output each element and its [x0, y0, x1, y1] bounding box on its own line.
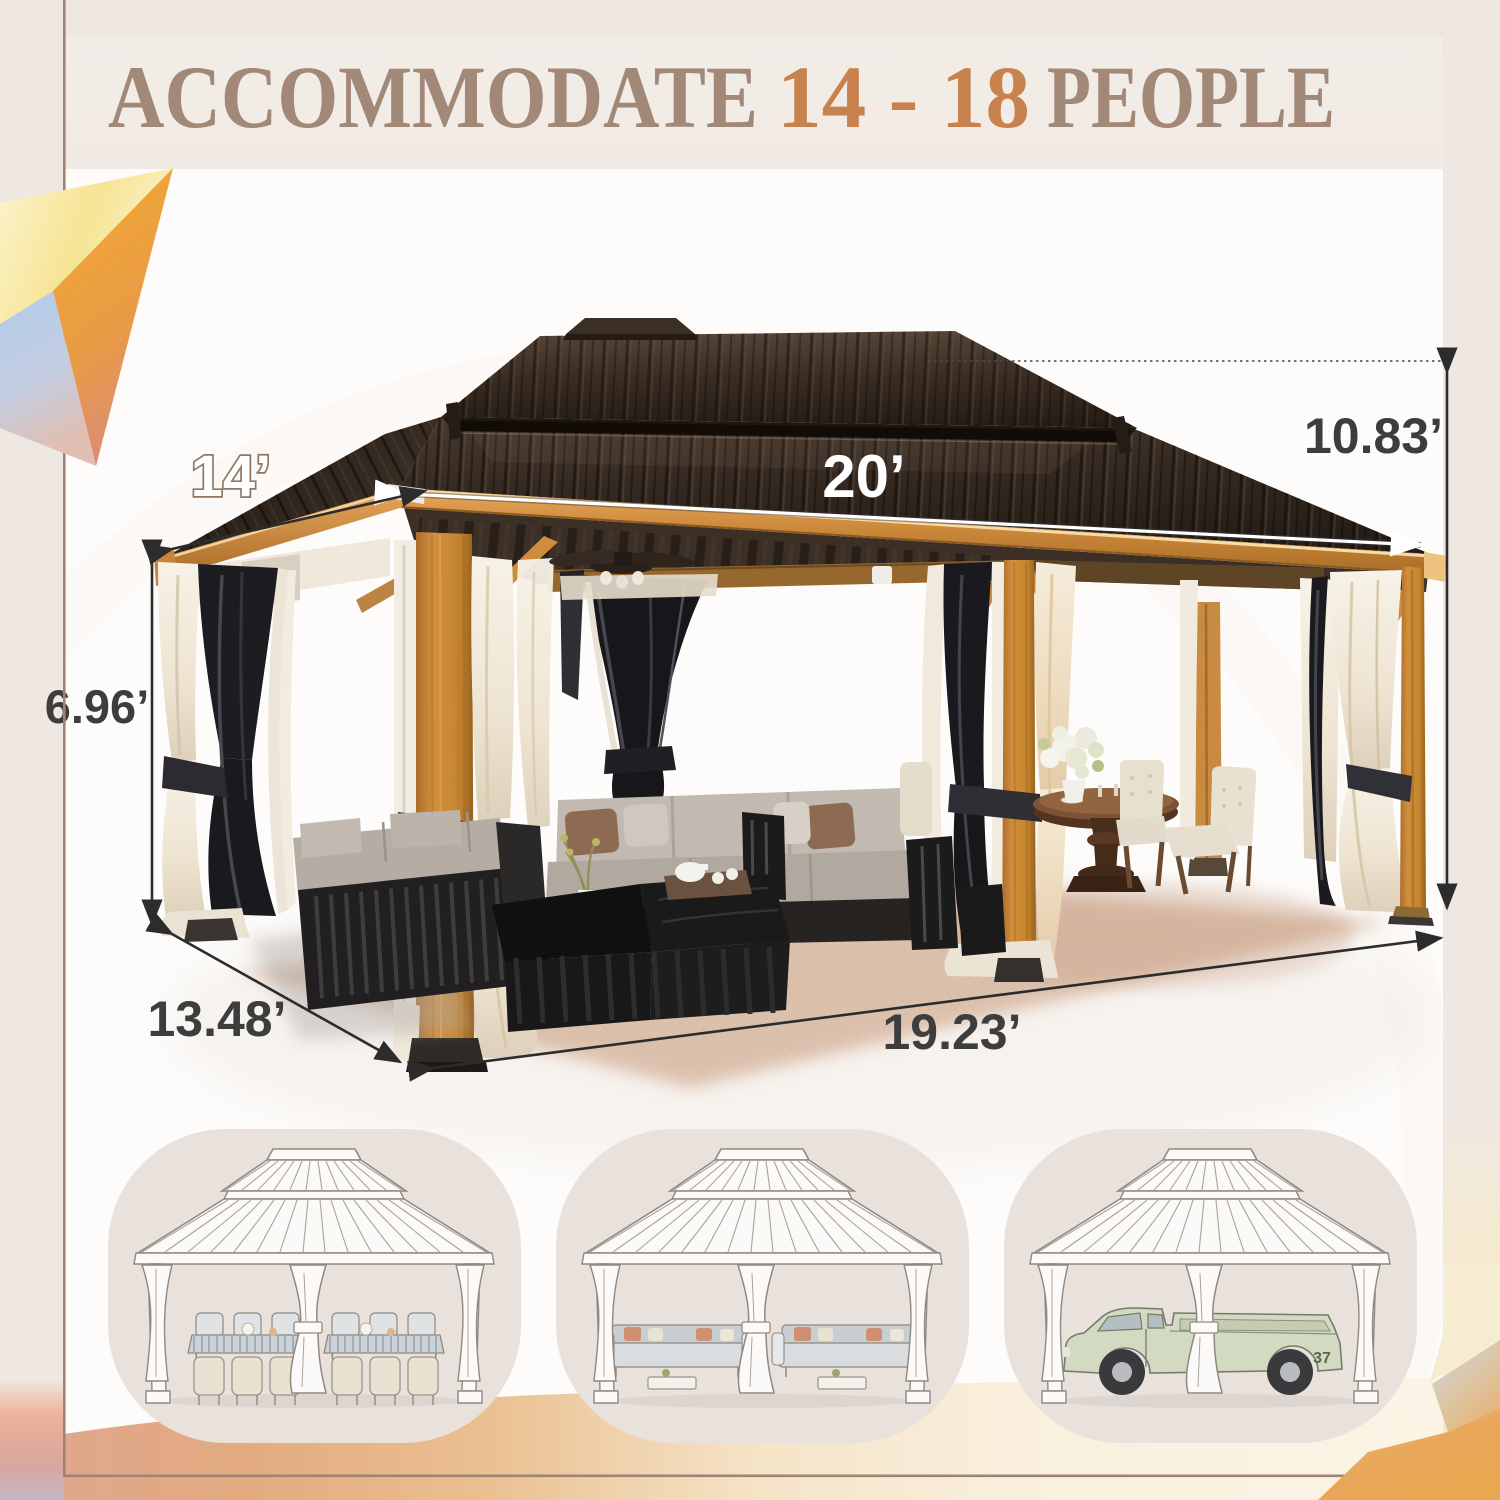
- svg-text:6.96’: 6.96’: [45, 680, 150, 733]
- svg-text:13.48’: 13.48’: [147, 991, 286, 1047]
- svg-text:19.23’: 19.23’: [882, 1004, 1021, 1060]
- svg-text:20’: 20’: [822, 443, 905, 510]
- svg-text:14’: 14’: [191, 444, 272, 509]
- svg-text:14 - 18: 14 - 18: [777, 49, 1030, 147]
- svg-text:37: 37: [1313, 1350, 1331, 1367]
- svg-text:ACCOMMODATE: ACCOMMODATE: [108, 49, 758, 147]
- svg-text:PEOPLE: PEOPLE: [1047, 49, 1335, 147]
- svg-text:10.83’: 10.83’: [1304, 408, 1443, 464]
